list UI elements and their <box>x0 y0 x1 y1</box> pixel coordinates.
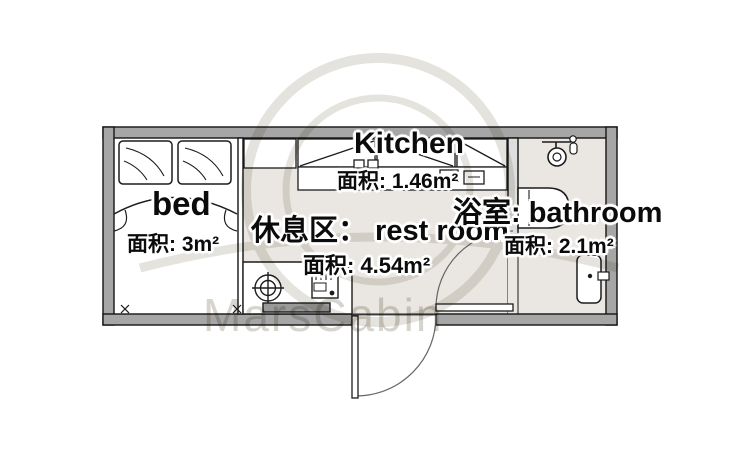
restroom-area-label: 面积: 4.54m² <box>303 248 430 280</box>
watermark-text: MarsCabin <box>203 288 443 342</box>
wall-bottom-right <box>436 314 617 325</box>
bathroom-label: 浴室: bathroom <box>453 189 662 231</box>
closet <box>244 139 296 168</box>
washbasin-faucet <box>598 272 609 280</box>
shower-head-icon <box>548 148 566 166</box>
wall-left <box>103 127 114 325</box>
shower-knob <box>570 143 577 154</box>
kitchen-area-label: 面积: 1.46m² <box>337 165 458 195</box>
bathroom-area-label: 面积: 2.1m² <box>504 230 614 260</box>
washbasin-dot <box>588 274 592 278</box>
shower-knob-top <box>570 136 576 142</box>
bedroom-area-label: 面积: 3m² <box>127 228 219 258</box>
kitchen-label: Kitchen <box>354 127 464 161</box>
bathroom-door-leaf <box>436 304 513 311</box>
floorplan-canvas: MarsCabin Kitchen 面积: 1.46m² bed 面积: 3m²… <box>0 0 750 452</box>
bedroom-label: bed <box>152 185 211 223</box>
